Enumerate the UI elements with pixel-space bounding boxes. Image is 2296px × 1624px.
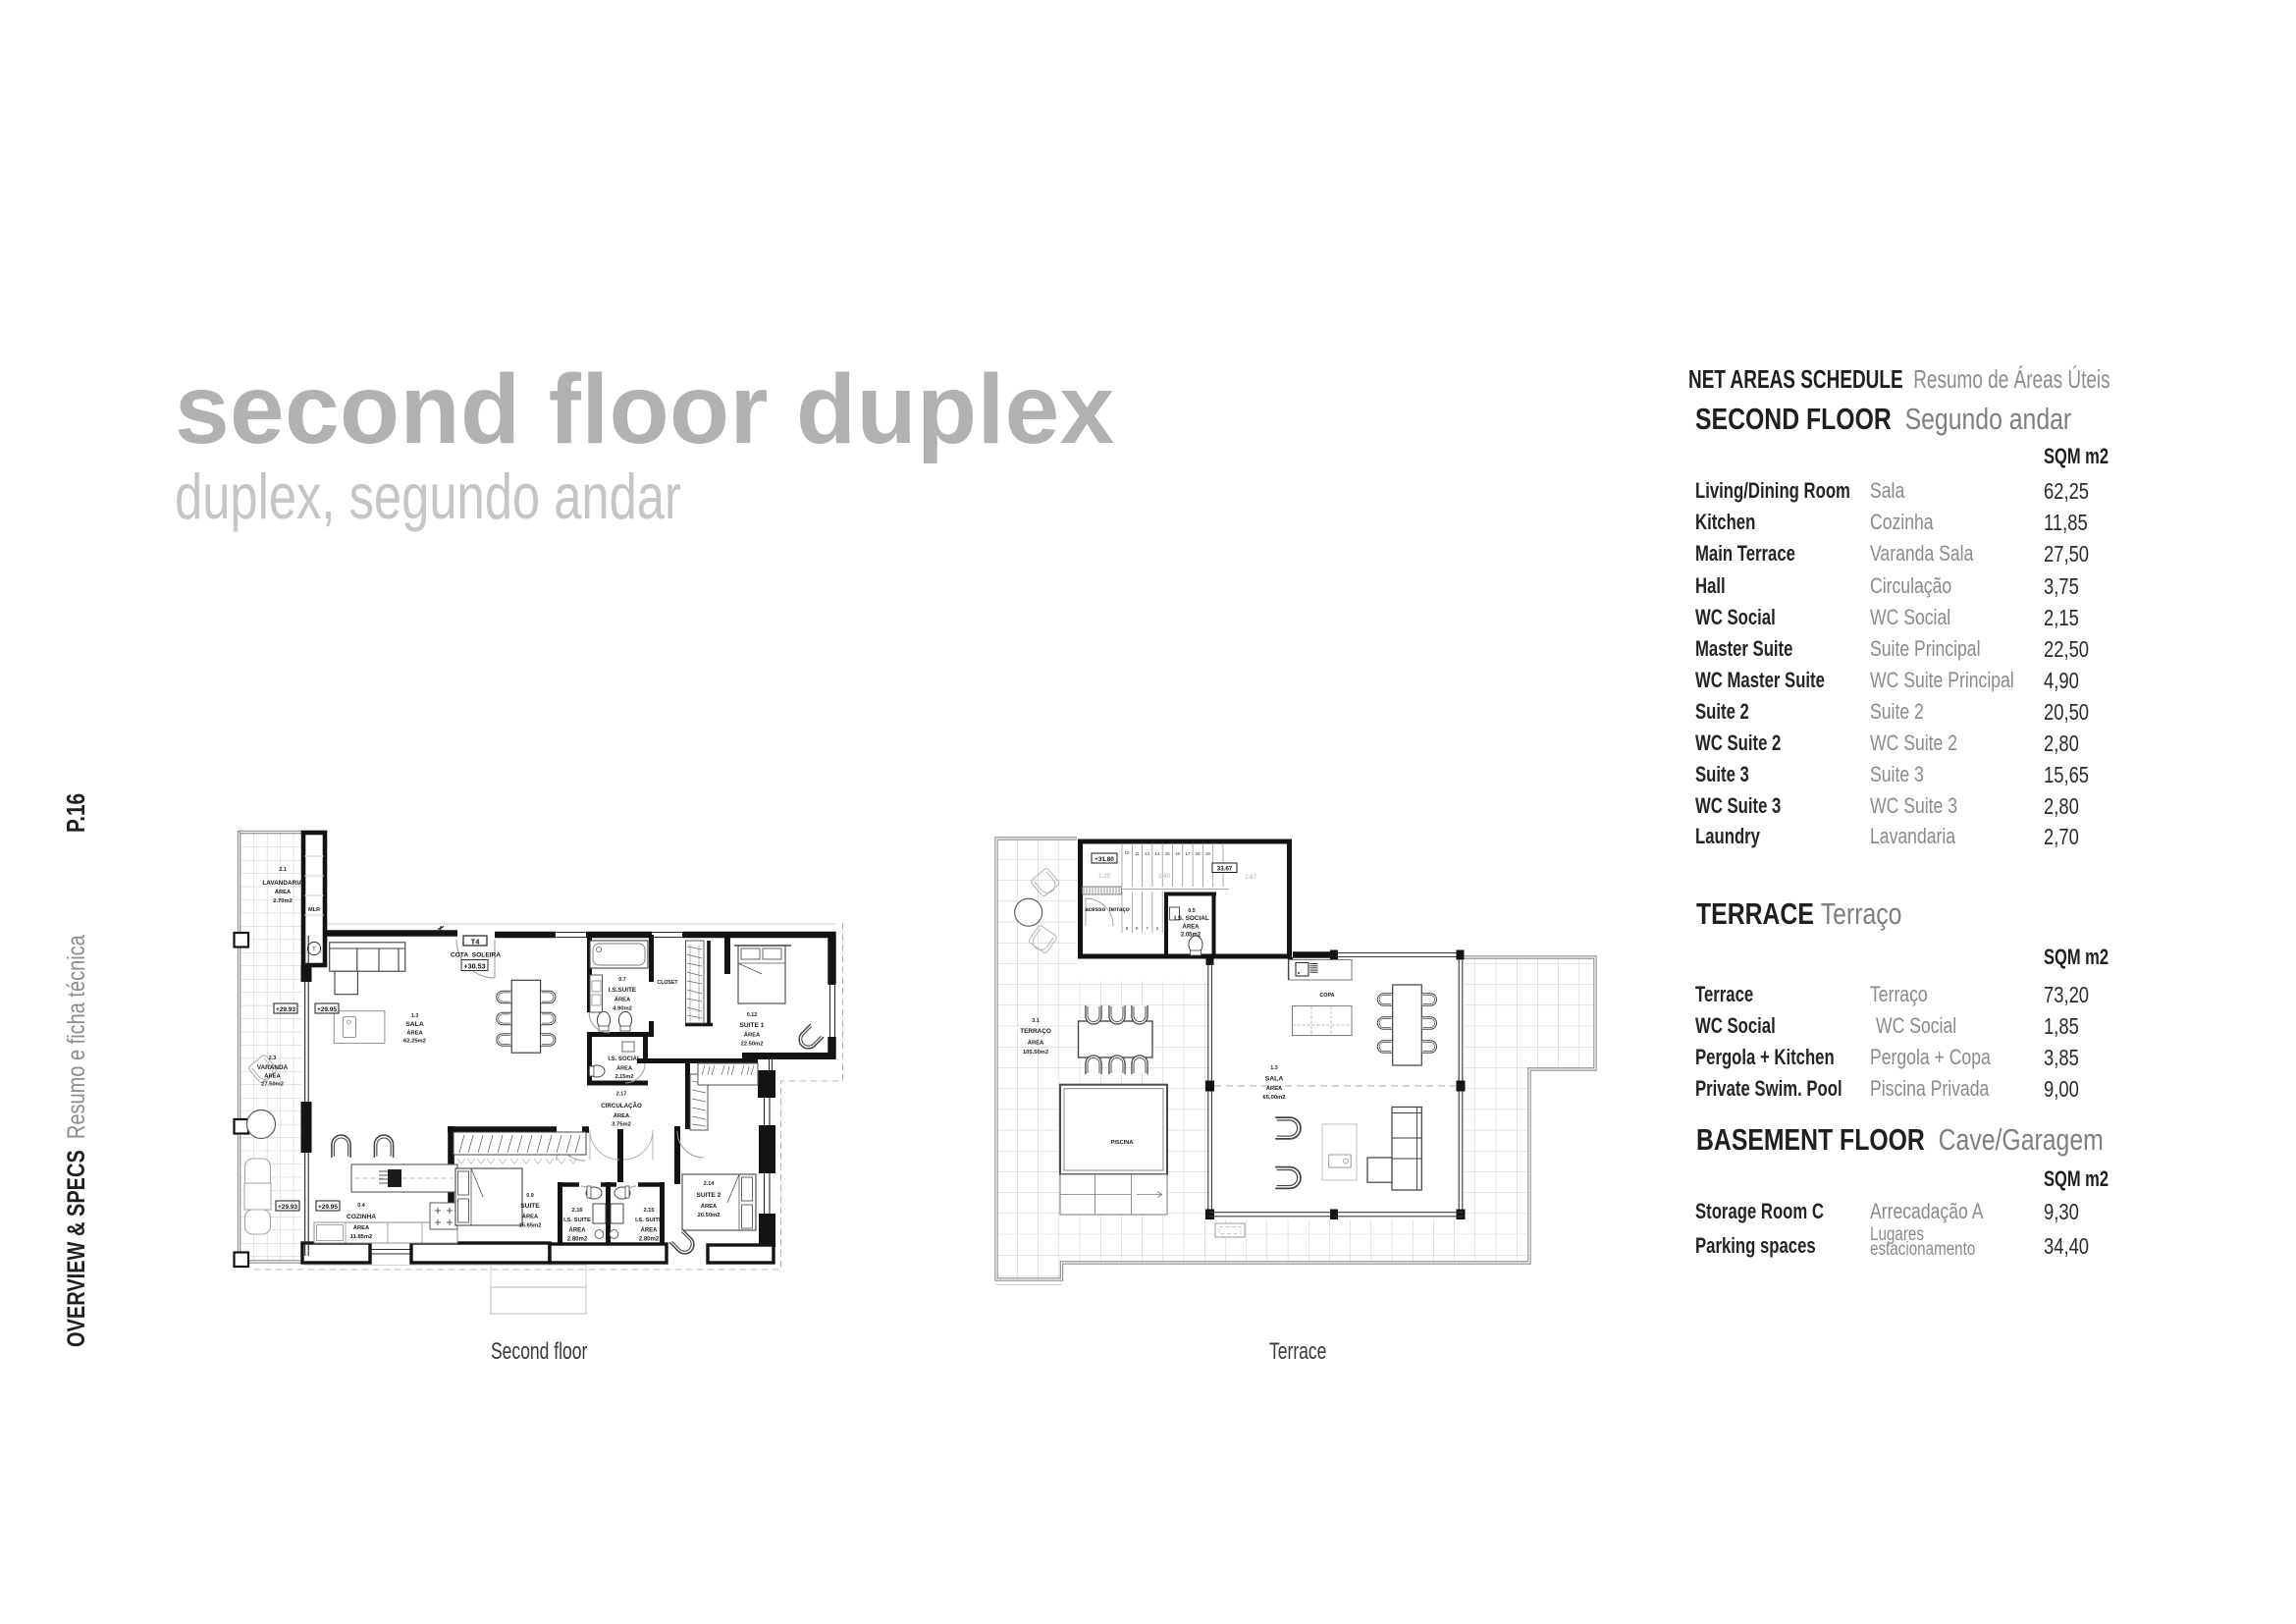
svg-text:22.50m2: 22.50m2 [741, 1042, 764, 1048]
svg-text:2.40: 2.40 [1158, 873, 1171, 880]
svg-text:VARANDA: VARANDA [257, 1064, 289, 1071]
svg-text:15: 15 [1165, 851, 1171, 856]
svg-text:15.65m2: 15.65m2 [519, 1223, 542, 1229]
svg-text:COPA: COPA [1319, 993, 1334, 999]
svg-text:2.15: 2.15 [644, 1208, 655, 1214]
svg-text:T4: T4 [471, 938, 481, 947]
svg-text:ÁREA: ÁREA [744, 1032, 761, 1039]
svg-text:2.1: 2.1 [279, 867, 287, 873]
svg-text:27.50m2: 27.50m2 [261, 1082, 284, 1088]
svg-text:2.3: 2.3 [269, 1056, 277, 1061]
svg-text:0.5: 0.5 [1188, 908, 1196, 914]
svg-text:PISCINA: PISCINA [1111, 1140, 1134, 1146]
svg-text:4.90m2: 4.90m2 [613, 1006, 632, 1012]
svg-text:+29.95: +29.95 [318, 1204, 338, 1211]
svg-text:65,00m2: 65,00m2 [1263, 1095, 1286, 1101]
svg-text:1.3: 1.3 [1270, 1065, 1278, 1071]
svg-text:I.S.SUITE: I.S.SUITE [609, 987, 637, 994]
svg-text:2.70m2: 2.70m2 [273, 898, 293, 904]
svg-text:CIRCULAÇÃO: CIRCULAÇÃO [601, 1103, 642, 1110]
svg-text:0.4: 0.4 [357, 1203, 365, 1209]
svg-text:16: 16 [1175, 851, 1181, 856]
svg-text:SUITE 2: SUITE 2 [697, 1192, 721, 1199]
svg-text:ÁREA: ÁREA [1182, 924, 1200, 931]
svg-text:TERRAÇO: TERRAÇO [1020, 1028, 1051, 1035]
svg-text:ÁREA: ÁREA [614, 997, 631, 1003]
svg-text:0.7: 0.7 [618, 977, 626, 983]
svg-text:2.67: 2.67 [1245, 874, 1257, 881]
svg-text:ÁREA: ÁREA [275, 889, 292, 895]
svg-text:ÁREA: ÁREA [353, 1224, 370, 1231]
svg-text:MLR: MLR [308, 907, 320, 913]
svg-text:13: 13 [1145, 851, 1150, 856]
svg-text:2.05m2: 2.05m2 [1181, 933, 1201, 939]
svg-text:2.16: 2.16 [572, 1208, 583, 1214]
svg-text:0.9: 0.9 [526, 1193, 534, 1199]
svg-text:+29.93: +29.93 [276, 1006, 295, 1013]
svg-text:I.S. SOCIAL: I.S. SOCIAL [608, 1056, 641, 1062]
svg-text:ÁREA: ÁREA [701, 1203, 718, 1210]
svg-text:SUITE: SUITE [520, 1203, 540, 1210]
svg-text:1.3: 1.3 [411, 1013, 419, 1019]
svg-text:3.1: 3.1 [1032, 1018, 1040, 1024]
svg-text:+29.93: +29.93 [278, 1204, 297, 1211]
svg-text:62.25m2: 62.25m2 [403, 1039, 426, 1045]
svg-text:10: 10 [1124, 850, 1130, 855]
svg-text:I.S. SUITE: I.S. SUITE [563, 1218, 591, 1223]
svg-text:20.50m2: 20.50m2 [698, 1213, 721, 1218]
svg-text:1.20: 1.20 [1098, 873, 1111, 880]
svg-text:COZINHA: COZINHA [347, 1214, 376, 1220]
svg-text:2.14: 2.14 [704, 1181, 715, 1187]
svg-text:11: 11 [1135, 851, 1140, 856]
svg-text:105.50m2: 105.50m2 [1023, 1050, 1048, 1056]
svg-text:T: T [312, 947, 316, 953]
svg-text:I.S. SOCIAL: I.S. SOCIAL [1174, 915, 1209, 922]
svg-text:ÁREA: ÁREA [1028, 1040, 1044, 1047]
svg-text:2.17: 2.17 [616, 1092, 627, 1098]
svg-text:3.75m2: 3.75m2 [612, 1122, 631, 1128]
svg-text:17: 17 [1185, 851, 1191, 856]
svg-text:ÁREA: ÁREA [264, 1073, 281, 1080]
svg-text:+31.80: +31.80 [1095, 856, 1114, 863]
svg-text:ÁREA: ÁREA [616, 1065, 632, 1072]
svg-text:18: 18 [1196, 851, 1201, 856]
svg-text:14: 14 [1154, 851, 1160, 856]
svg-text:LAVANDARIA: LAVANDARIA [262, 880, 303, 887]
svg-text:19: 19 [1205, 851, 1211, 856]
svg-text:SUITE 1: SUITE 1 [740, 1022, 765, 1029]
svg-text:0.12: 0.12 [747, 1012, 758, 1018]
svg-text:COTA SOLEIRA: COTA SOLEIRA [451, 952, 501, 959]
svg-text:+29.95: +29.95 [317, 1006, 337, 1013]
svg-text:2.15m2: 2.15m2 [615, 1074, 634, 1080]
svg-text:+30.53: +30.53 [463, 962, 485, 971]
svg-text:ÁREA: ÁREA [568, 1227, 586, 1234]
svg-text:CLOSET: CLOSET [657, 980, 678, 986]
svg-text:SALA: SALA [1265, 1076, 1284, 1083]
svg-text:ÁREA: ÁREA [1266, 1085, 1283, 1092]
svg-text:I.S. SUITE: I.S. SUITE [635, 1218, 663, 1223]
svg-text:ÁREA: ÁREA [640, 1227, 658, 1234]
svg-text:33.67: 33.67 [1217, 866, 1233, 873]
svg-text:SALA: SALA [405, 1021, 424, 1028]
svg-text:ÁREA: ÁREA [406, 1030, 423, 1037]
svg-text:11.85m2: 11.85m2 [350, 1234, 373, 1240]
svg-text:ÁREA: ÁREA [522, 1214, 539, 1220]
svg-text:ÁREA: ÁREA [614, 1112, 630, 1119]
svg-text:2.80m2: 2.80m2 [567, 1237, 588, 1243]
svg-text:acesso terraço: acesso terraço [1085, 906, 1130, 913]
svg-text:2.80m2: 2.80m2 [639, 1237, 660, 1243]
